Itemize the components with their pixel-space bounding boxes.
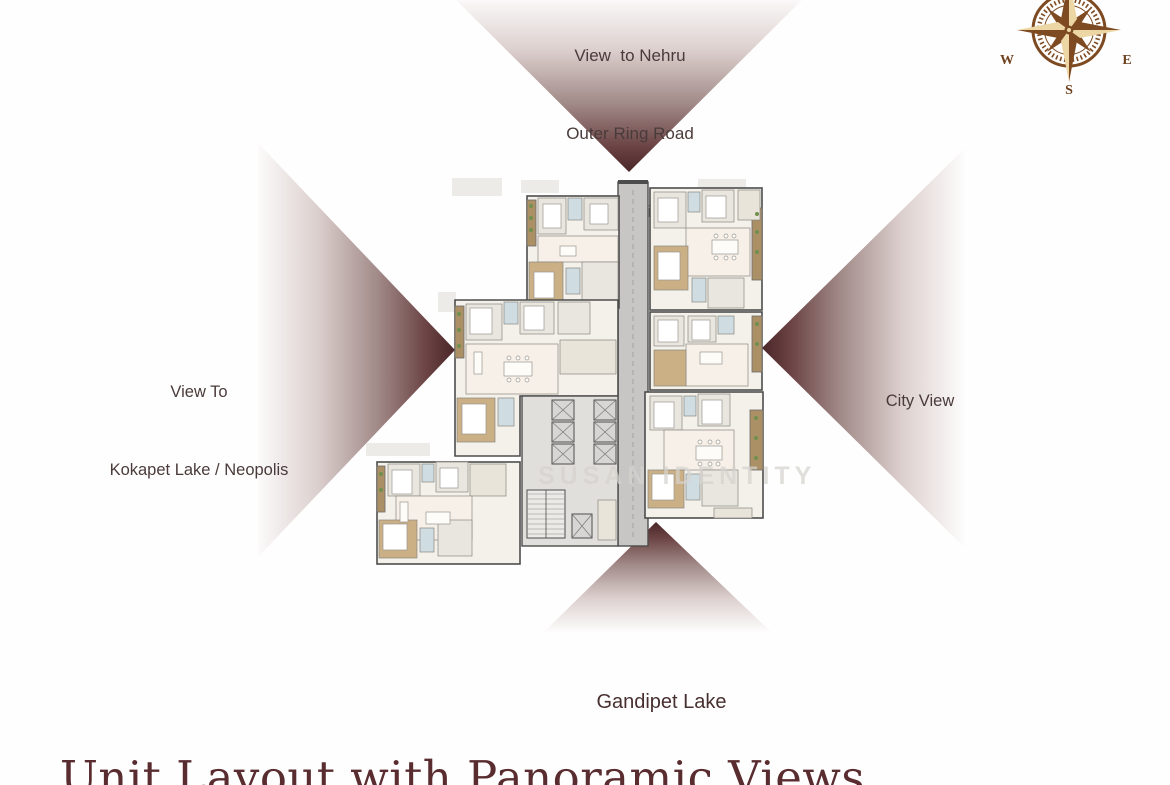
view-label-west-line1: View To — [39, 379, 359, 405]
apartment-unit-bottom-right — [645, 392, 763, 518]
view-label-north-line1: View to Nehru — [530, 43, 730, 69]
page-title: Unit Layout with Panoramic Views — [60, 751, 1160, 785]
view-label-east: City View — [820, 336, 1020, 466]
apartment-unit-bottom-left — [377, 462, 520, 564]
compass-south-label: S — [1065, 83, 1073, 98]
apartment-unit-top-left — [527, 196, 619, 308]
staircase — [527, 490, 565, 538]
central-corridor — [618, 180, 648, 546]
floor-plan — [365, 175, 770, 580]
compass-cardinal-points — [1017, 0, 1121, 82]
apartment-unit-mid-right — [650, 312, 762, 390]
view-label-west-line2: Kokapet Lake / Neopolis — [39, 457, 359, 483]
compass-east-label: E — [1122, 53, 1131, 68]
compass-west-label: W — [1000, 53, 1014, 68]
page: View to Nehru Outer Ring Road & City Vie… — [0, 0, 1170, 785]
view-label-south-line1: Gandipet Lake — [539, 688, 784, 716]
view-label-east-line1: City View — [820, 388, 1020, 414]
watermark-text: SUSAN IDENTITY — [538, 462, 816, 491]
view-label-west: View To Kokapet Lake / Neopolis — [39, 327, 359, 535]
view-label-north-line2: Outer Ring Road — [530, 121, 730, 147]
apartment-unit-top-right — [650, 188, 762, 310]
compass-rose-icon: W E S — [999, 0, 1139, 100]
